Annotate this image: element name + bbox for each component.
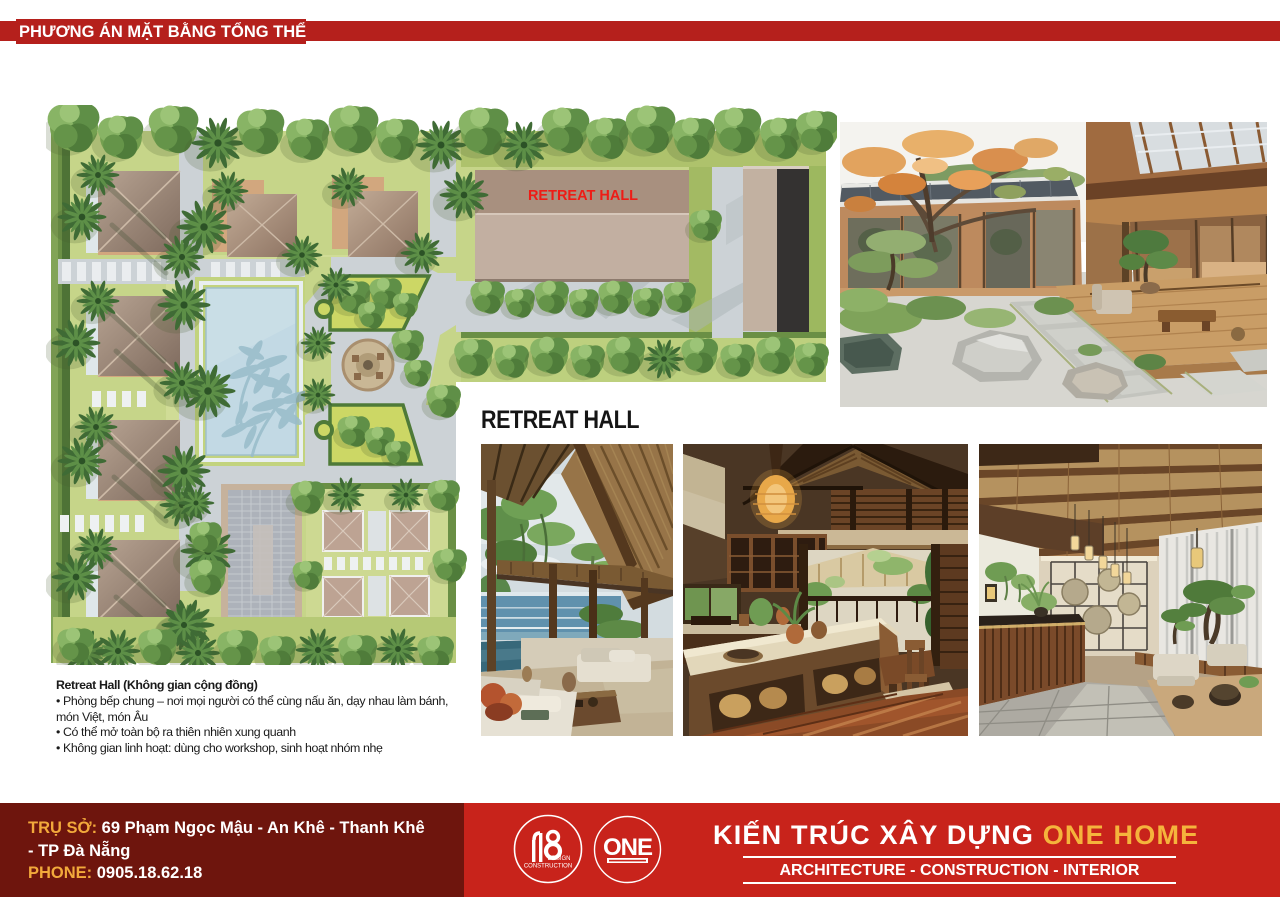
svg-text:DESIGN: DESIGN — [547, 856, 570, 862]
svg-text:RETREAT HALL: RETREAT HALL — [528, 188, 638, 204]
svg-text:ONE: ONE — [603, 834, 653, 861]
svg-text:CONSTRUCTION: CONSTRUCTION — [524, 864, 572, 870]
